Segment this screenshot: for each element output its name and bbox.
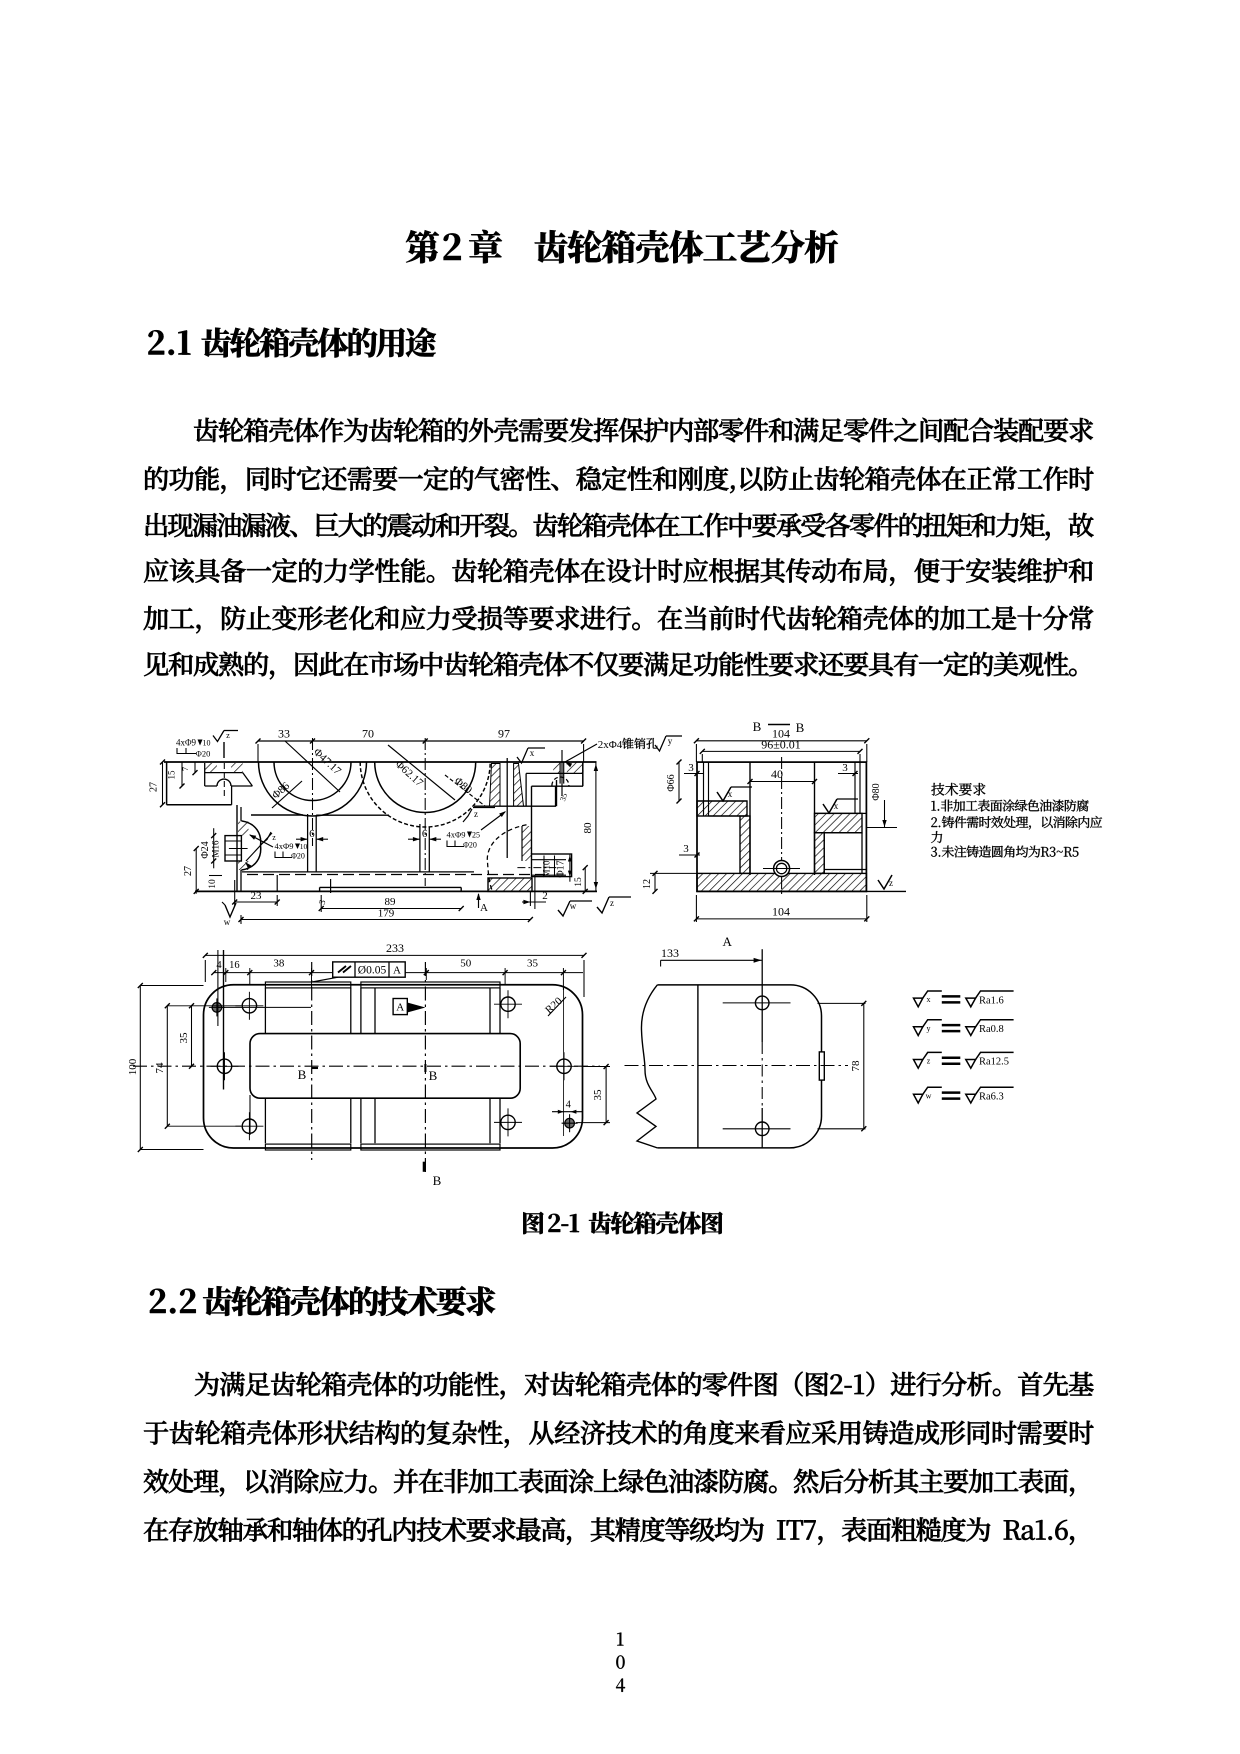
svg-text:2xΦ4: 2xΦ4 bbox=[598, 739, 623, 751]
svg-text:50: 50 bbox=[460, 958, 472, 970]
svg-text:z: z bbox=[927, 1057, 931, 1066]
svg-text:35: 35 bbox=[592, 1089, 604, 1101]
svg-text:4xΦ9: 4xΦ9 bbox=[447, 830, 466, 840]
svg-text:B: B bbox=[433, 1173, 442, 1188]
svg-text:z: z bbox=[226, 730, 230, 740]
svg-text:89: 89 bbox=[385, 896, 397, 908]
svg-text:16: 16 bbox=[229, 960, 240, 971]
svg-text:35: 35 bbox=[178, 1032, 190, 1044]
svg-text:4xΦ9: 4xΦ9 bbox=[275, 841, 294, 851]
svg-text:10: 10 bbox=[208, 879, 218, 889]
svg-text:12: 12 bbox=[642, 879, 653, 889]
svg-text:80: 80 bbox=[582, 822, 594, 834]
svg-text:M16: M16 bbox=[211, 840, 221, 858]
svg-text:78: 78 bbox=[850, 1060, 862, 1072]
svg-text:Φ17: Φ17 bbox=[556, 860, 567, 877]
svg-text:Φ24: Φ24 bbox=[200, 841, 211, 858]
svg-text:23: 23 bbox=[251, 890, 263, 902]
svg-text:96±0.01: 96±0.01 bbox=[761, 738, 801, 752]
svg-text:70: 70 bbox=[362, 727, 374, 741]
svg-text:A: A bbox=[396, 1002, 404, 1014]
svg-text:Ra0.8: Ra0.8 bbox=[979, 1024, 1004, 1035]
svg-text:z: z bbox=[610, 898, 614, 908]
svg-text:w: w bbox=[224, 917, 231, 927]
svg-text:A: A bbox=[480, 902, 488, 914]
svg-text:15: 15 bbox=[167, 770, 177, 780]
svg-text:Ø0.05: Ø0.05 bbox=[358, 965, 387, 977]
svg-text:27: 27 bbox=[183, 866, 194, 876]
svg-text:15: 15 bbox=[574, 877, 584, 887]
svg-text:x: x bbox=[834, 801, 839, 811]
svg-text:4: 4 bbox=[216, 960, 222, 971]
svg-text:Φ20: Φ20 bbox=[291, 852, 305, 861]
svg-text:Ra1.6: Ra1.6 bbox=[979, 995, 1004, 1006]
svg-text:Φ66: Φ66 bbox=[666, 774, 677, 791]
svg-text:38: 38 bbox=[273, 958, 285, 970]
svg-text:z: z bbox=[889, 878, 893, 888]
svg-text:74: 74 bbox=[154, 1062, 166, 1074]
svg-text:B: B bbox=[796, 720, 805, 735]
svg-text:6: 6 bbox=[309, 828, 315, 840]
svg-text:w: w bbox=[570, 901, 577, 911]
svg-text:10: 10 bbox=[203, 739, 211, 748]
svg-text:4: 4 bbox=[566, 1100, 572, 1111]
svg-text:35: 35 bbox=[527, 958, 539, 970]
svg-text:x: x bbox=[530, 748, 535, 758]
svg-text:100: 100 bbox=[127, 1058, 139, 1075]
svg-text:Ra6.3: Ra6.3 bbox=[979, 1092, 1004, 1103]
svg-text:B: B bbox=[753, 719, 762, 734]
svg-text:179: 179 bbox=[378, 908, 395, 920]
svg-text:x: x bbox=[728, 789, 733, 799]
svg-text:25: 25 bbox=[472, 831, 480, 840]
svg-text:w: w bbox=[926, 1091, 932, 1100]
svg-text:3: 3 bbox=[683, 843, 689, 855]
svg-text:Φ80: Φ80 bbox=[871, 783, 882, 800]
svg-text:z: z bbox=[474, 809, 478, 819]
svg-text:y: y bbox=[668, 736, 673, 746]
svg-text:3: 3 bbox=[688, 762, 694, 774]
svg-text:Φ20: Φ20 bbox=[463, 841, 477, 850]
svg-text:7: 7 bbox=[180, 767, 190, 771]
svg-text:27: 27 bbox=[149, 782, 160, 792]
svg-text:y: y bbox=[927, 1024, 931, 1033]
svg-text:B: B bbox=[429, 1068, 438, 1083]
svg-text:x: x bbox=[927, 995, 931, 1004]
svg-text:97: 97 bbox=[498, 727, 510, 741]
svg-text:33: 33 bbox=[278, 727, 290, 741]
svg-text:104: 104 bbox=[772, 905, 790, 919]
svg-text:10: 10 bbox=[300, 842, 308, 851]
svg-text:6: 6 bbox=[422, 828, 428, 840]
svg-text:A: A bbox=[393, 965, 401, 977]
svg-text:Ra12.5: Ra12.5 bbox=[979, 1057, 1009, 1068]
svg-text:133: 133 bbox=[661, 946, 679, 960]
svg-text:3: 3 bbox=[842, 762, 848, 774]
svg-text:2: 2 bbox=[542, 890, 548, 902]
svg-text:233: 233 bbox=[386, 941, 404, 955]
svg-text:B: B bbox=[298, 1067, 307, 1082]
svg-text:Φ20: Φ20 bbox=[196, 749, 211, 759]
svg-text:4xΦ9: 4xΦ9 bbox=[176, 738, 197, 748]
svg-text:A: A bbox=[723, 934, 733, 949]
